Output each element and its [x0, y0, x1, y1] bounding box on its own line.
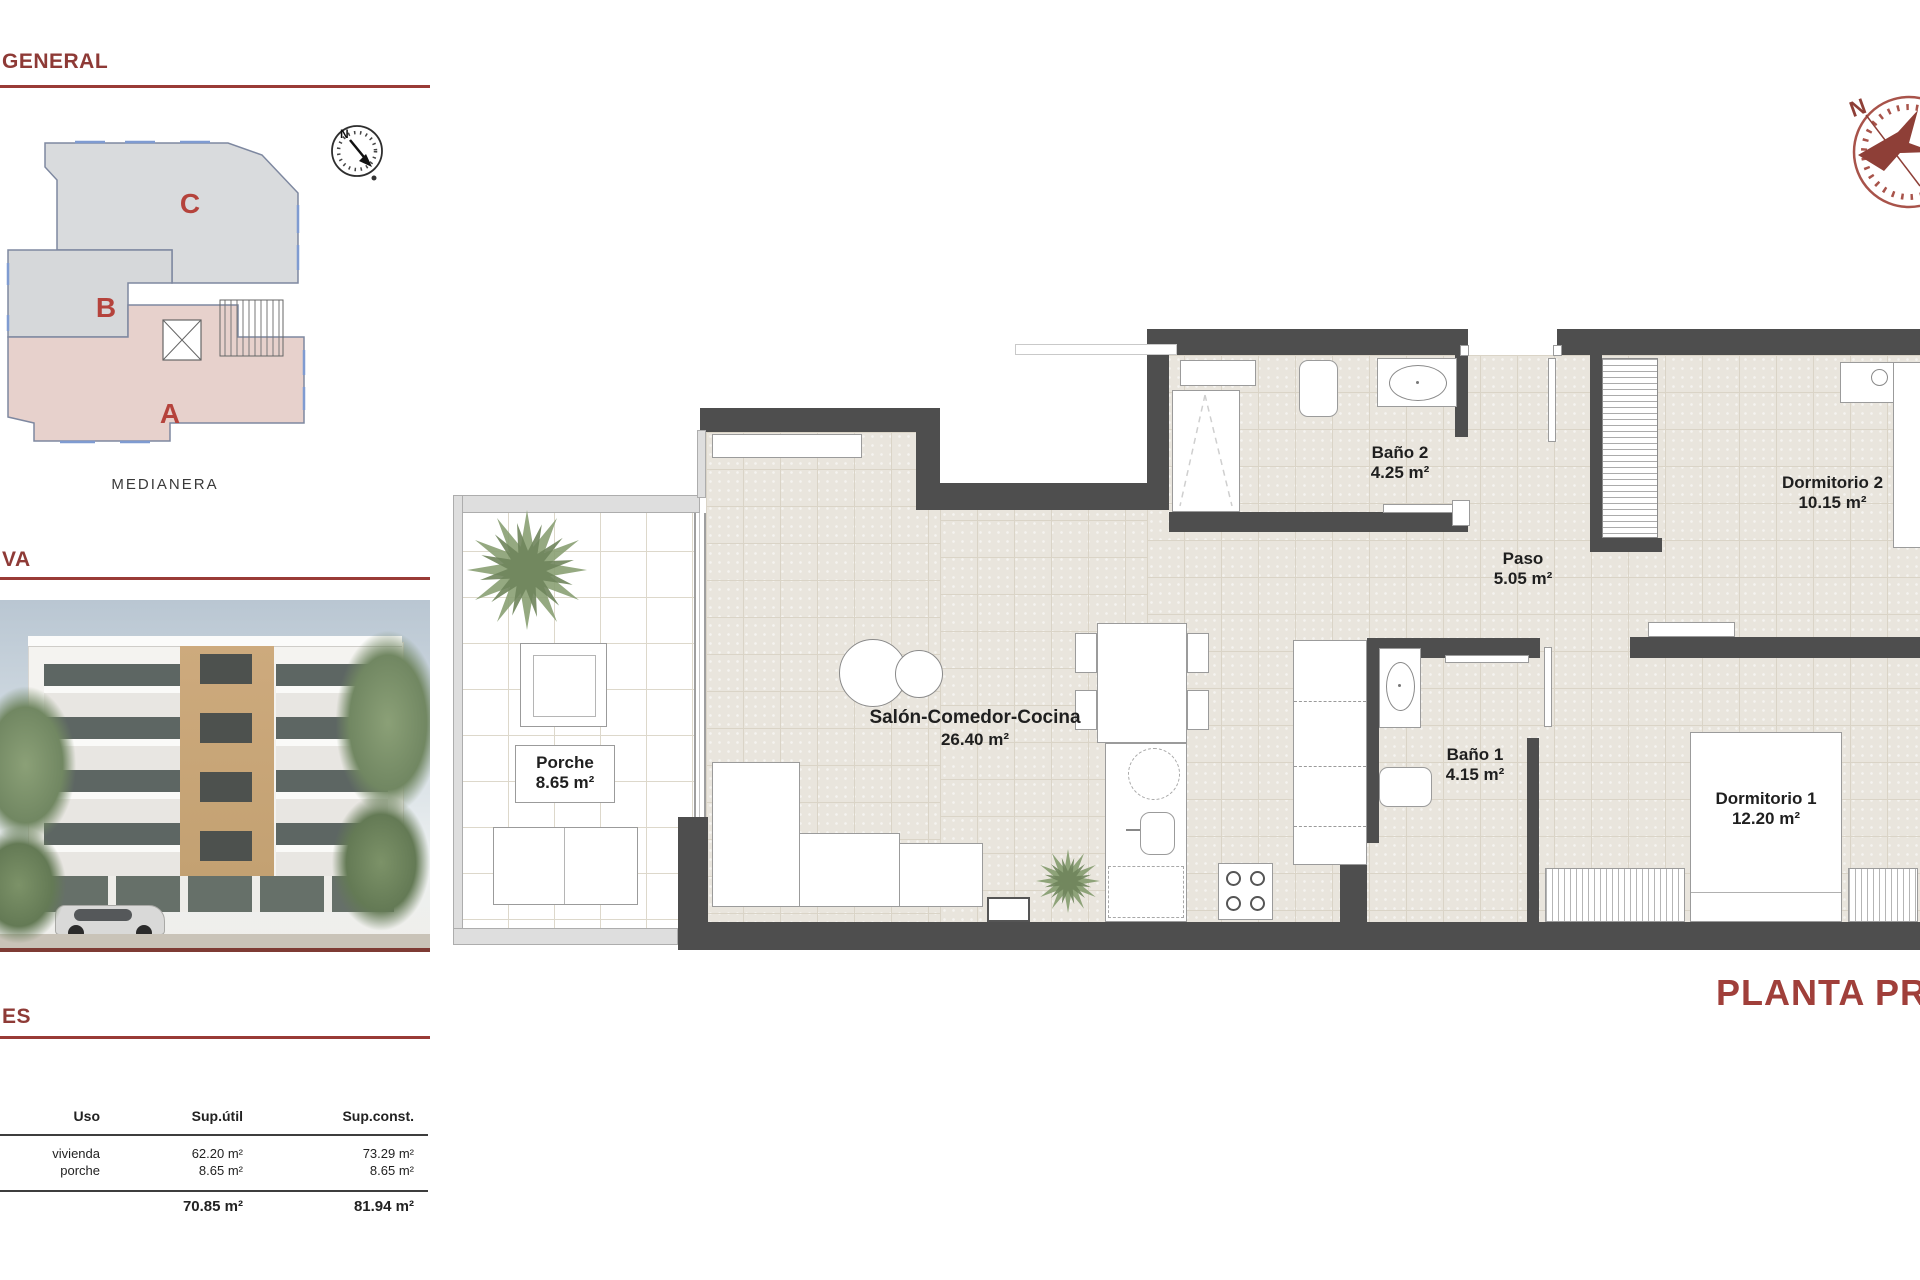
medianera-label: MEDIANERA — [0, 476, 330, 493]
tap — [1126, 829, 1140, 831]
shelf — [1445, 655, 1529, 663]
room-label-bano1: Baño 1 4.15 m² — [1400, 745, 1550, 786]
room-area: 5.05 m² — [1453, 569, 1593, 589]
room-name: Salón-Comedor-Cocina — [795, 707, 1155, 730]
washing-machine — [1128, 748, 1180, 800]
chair — [1187, 690, 1209, 730]
wall-segment — [678, 922, 1920, 950]
table-total-util: 70.85 m² — [133, 1198, 243, 1215]
window-blind — [1848, 868, 1918, 922]
toilet — [1299, 360, 1338, 417]
shelf — [1648, 622, 1735, 637]
shower — [1172, 390, 1240, 512]
drain-dot — [1398, 684, 1401, 687]
room-name: Baño 2 — [1330, 443, 1470, 463]
wall-segment — [678, 817, 708, 922]
wall-segment — [1147, 329, 1468, 355]
compass-icon: N — [1846, 93, 1920, 207]
wall-segment — [1590, 355, 1602, 540]
table-cell: 73.29 m² — [304, 1146, 414, 1161]
porch-parapet — [453, 928, 678, 945]
divider-line — [0, 577, 430, 580]
burner — [1226, 896, 1241, 911]
building-render-image — [0, 600, 430, 950]
table-cell: porche — [10, 1163, 100, 1178]
room-label-salon: Salón-Comedor-Cocina 26.40 m² — [795, 707, 1155, 750]
door-jamb — [1553, 345, 1562, 356]
divider-line — [0, 1036, 430, 1039]
room-label-paso: Paso 5.05 m² — [1453, 549, 1593, 590]
room-name: Porche — [516, 753, 614, 773]
kitchen-counter — [1293, 640, 1367, 865]
table-cell: 8.65 m² — [133, 1163, 243, 1178]
table-header-sup-const: Sup.const. — [304, 1108, 414, 1124]
room-label-bano2: Baño 2 4.25 m² — [1330, 443, 1470, 484]
wardrobe — [1602, 358, 1658, 538]
entry-door-leaf — [1548, 358, 1556, 442]
porch-parapet — [697, 430, 706, 498]
shelf — [1383, 504, 1461, 513]
kitchen-sink — [1140, 812, 1175, 855]
room-area: 8.65 m² — [516, 773, 614, 793]
section-title-perspective: VA — [2, 548, 31, 572]
counter-dashed — [1108, 866, 1184, 918]
round-table-small — [895, 650, 943, 698]
table-cell: vivienda — [10, 1146, 100, 1161]
porch-parapet — [453, 495, 700, 513]
tv-unit — [712, 434, 862, 458]
room-name: Paso — [1453, 549, 1593, 569]
chair — [1187, 633, 1209, 673]
tree-left — [0, 660, 93, 950]
room-label-dormitorio2: Dormitorio 2 10.15 m² — [1750, 473, 1915, 514]
room-area: 10.15 m² — [1750, 493, 1915, 513]
table-rule — [0, 1190, 428, 1192]
wall-segment — [1630, 637, 1920, 658]
compass-north-label: N — [1846, 93, 1869, 122]
burner — [1226, 871, 1241, 886]
site-unit-b-label: B — [96, 292, 116, 323]
sofa-chaise — [712, 762, 800, 907]
site-plan: C B A N — [0, 105, 430, 505]
room-name: Dormitorio 1 — [1686, 789, 1846, 809]
radiator-small — [1452, 500, 1470, 526]
porch-table — [520, 643, 607, 727]
room-area: 26.40 m² — [795, 730, 1155, 750]
section-title-general: GENERAL — [2, 50, 108, 74]
burner — [1250, 871, 1265, 886]
wall-segment — [700, 408, 940, 432]
site-compass-north-label: N — [340, 127, 349, 141]
table-total-const: 81.94 m² — [304, 1198, 414, 1215]
table-cell: 8.65 m² — [304, 1163, 414, 1178]
room-label-dormitorio1: Dormitorio 1 12.20 m² — [1686, 789, 1846, 830]
lamp — [1871, 369, 1888, 386]
tree-right — [318, 600, 430, 950]
room-area: 12.20 m² — [1686, 809, 1846, 829]
table-header-sup-util: Sup.útil — [133, 1108, 243, 1124]
nightstand — [1840, 362, 1900, 403]
room-label-porche: Porche 8.65 m² — [515, 745, 615, 803]
drain-dot — [1416, 381, 1419, 384]
site-elevator — [163, 320, 201, 360]
center-windows — [200, 654, 252, 890]
room-area: 4.25 m² — [1330, 463, 1470, 483]
table-cell: 62.20 m² — [133, 1146, 243, 1161]
wall-segment — [1340, 865, 1367, 922]
bed-2 — [1893, 362, 1920, 548]
wall-segment — [1557, 329, 1920, 355]
site-stairs — [220, 300, 283, 356]
plan-sheet: GENERAL C B A — [0, 0, 1920, 1280]
site-unit-c-label: C — [180, 188, 200, 219]
side-table — [987, 897, 1030, 922]
sliding-door — [694, 513, 706, 817]
chair — [1075, 633, 1097, 673]
wall-segment — [1169, 512, 1468, 532]
table-header-uso: Uso — [10, 1108, 100, 1124]
wall-segment — [916, 432, 940, 483]
burner — [1250, 896, 1265, 911]
porch-lounger — [493, 827, 638, 905]
divider-line — [0, 85, 430, 88]
section-title-areas: ES — [2, 1005, 31, 1029]
sofa — [899, 843, 983, 907]
room-area: 4.15 m² — [1400, 765, 1550, 785]
porch-parapet — [453, 495, 463, 945]
stove — [1218, 863, 1273, 920]
bedroom1-door-leaf — [1544, 647, 1552, 727]
bed-fold-line — [1691, 892, 1841, 893]
room-name: Dormitorio 2 — [1750, 473, 1915, 493]
floor-title: PLANTA PRIMERA — [1716, 972, 1920, 1014]
window-blind — [1545, 868, 1685, 922]
door-jamb — [1460, 345, 1469, 356]
site-compass-icon: N — [332, 126, 382, 181]
photo-bottom-line — [0, 948, 430, 952]
sofa — [799, 833, 900, 907]
wall-segment — [1367, 638, 1379, 843]
wall-segment — [1590, 538, 1662, 552]
site-unit-a-label: A — [160, 398, 180, 429]
wall-segment — [916, 483, 1169, 510]
table-rule — [0, 1134, 428, 1136]
room-name: Baño 1 — [1400, 745, 1550, 765]
bathroom2-shelf — [1180, 360, 1256, 386]
window-ledge — [1015, 344, 1177, 355]
